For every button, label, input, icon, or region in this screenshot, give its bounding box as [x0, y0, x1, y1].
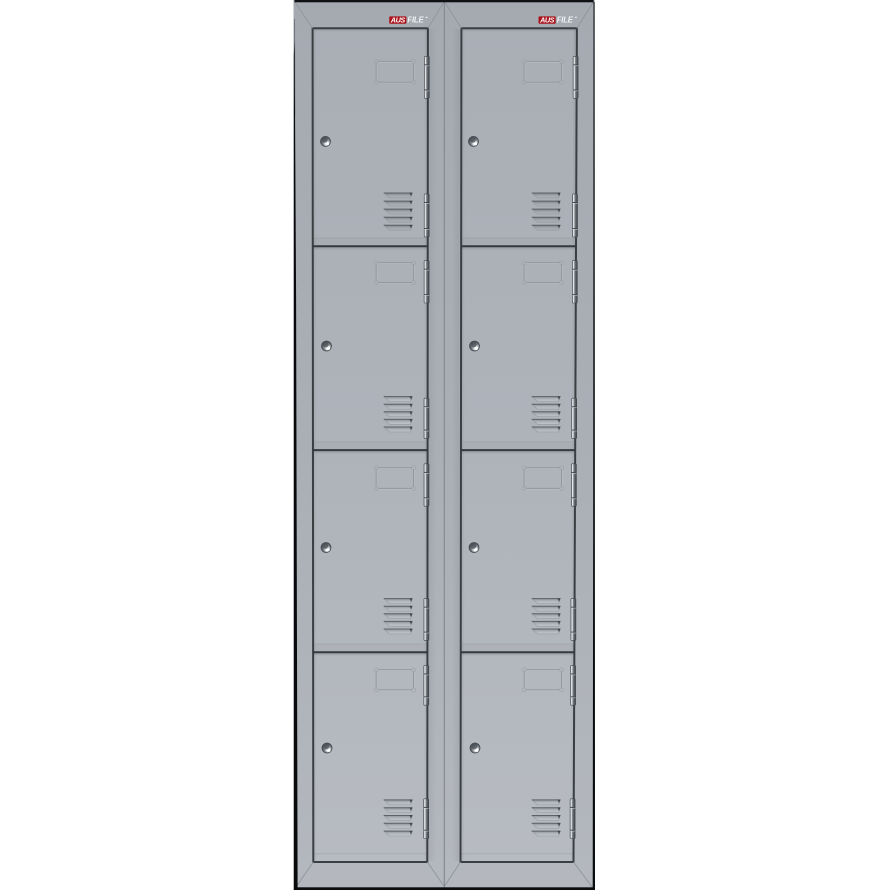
svg-text:FILE: FILE	[407, 16, 424, 25]
svg-text:FILE: FILE	[557, 16, 574, 25]
svg-text:AUS: AUS	[539, 16, 555, 25]
svg-text:AUS: AUS	[390, 16, 406, 25]
